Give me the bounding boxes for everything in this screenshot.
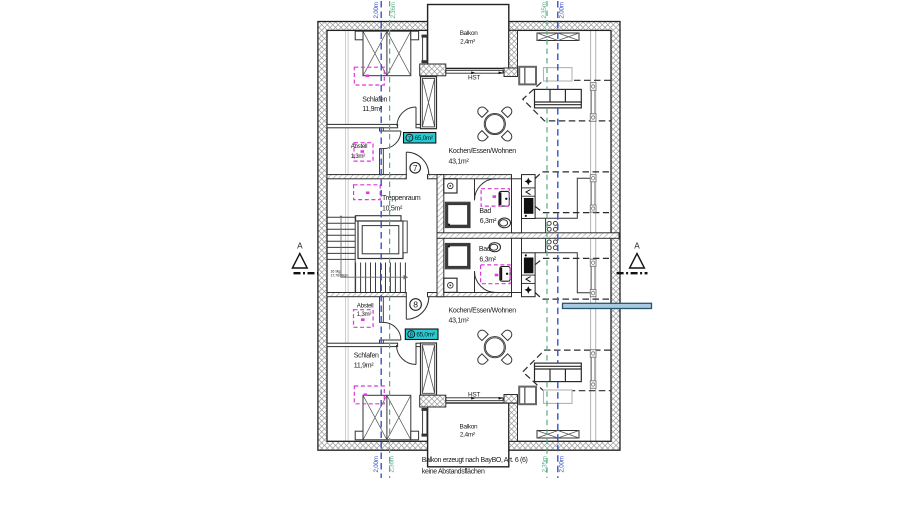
svg-text:Bad: Bad (479, 246, 491, 253)
svg-text:11,9m²: 11,9m² (354, 362, 374, 369)
svg-text:7: 7 (408, 136, 411, 142)
svg-text:2,36m: 2,36m (390, 2, 397, 18)
svg-text:keine Abstandsflächen: keine Abstandsflächen (422, 469, 485, 476)
svg-text:Balkon erzeugt nach BayBO, Art: Balkon erzeugt nach BayBO, Art. 6 (6) (422, 457, 528, 464)
svg-text:2,00m: 2,00m (558, 2, 565, 18)
svg-text:43,1m²: 43,1m² (449, 318, 470, 325)
svg-text:8: 8 (410, 333, 413, 339)
svg-text:6,3m²: 6,3m² (480, 218, 497, 225)
svg-text:Balkon: Balkon (460, 424, 478, 431)
svg-text:2,36m: 2,36m (389, 456, 396, 472)
svg-text:A: A (297, 242, 303, 251)
svg-text:2,35m: 2,35m (541, 456, 548, 472)
svg-text:Bad: Bad (479, 208, 491, 215)
svg-text:1,3m²: 1,3m² (357, 311, 372, 318)
svg-text:17,76/28cm: 17,76/28cm (330, 273, 348, 277)
svg-text:2,35m: 2,35m (541, 2, 548, 18)
svg-text:A: A (634, 242, 640, 251)
svg-text:Schlafen: Schlafen (362, 96, 387, 103)
svg-text:Kochen/Essen/Wohnen: Kochen/Essen/Wohnen (449, 308, 517, 315)
svg-text:2,00m: 2,00m (373, 456, 380, 472)
svg-text:Balkon: Balkon (460, 30, 478, 37)
svg-text:1,3m²: 1,3m² (351, 153, 366, 160)
svg-text:HST: HST (468, 75, 480, 82)
svg-text:43,1m²: 43,1m² (449, 158, 470, 165)
svg-text:2,4m²: 2,4m² (460, 38, 475, 45)
svg-text:10,5m²: 10,5m² (382, 206, 403, 213)
svg-text:11,9m²: 11,9m² (362, 106, 382, 113)
svg-text:6,3m²: 6,3m² (479, 257, 496, 264)
svg-text:2,00m: 2,00m (558, 456, 565, 472)
svg-text:Treppenraum: Treppenraum (382, 195, 421, 202)
svg-text:2,00m: 2,00m (373, 2, 380, 18)
svg-text:2,4m²: 2,4m² (460, 432, 475, 439)
svg-text:Schlafen: Schlafen (354, 353, 379, 360)
svg-text:Abstell: Abstell (357, 302, 373, 309)
svg-text:Abstell: Abstell (351, 143, 367, 150)
svg-text:Kochen/Essen/Wohnen: Kochen/Essen/Wohnen (449, 148, 517, 155)
svg-text:65,0m²: 65,0m² (416, 332, 434, 339)
svg-text:65,0m²: 65,0m² (415, 135, 433, 142)
svg-text:HST: HST (468, 391, 480, 398)
svg-text:8: 8 (413, 300, 418, 310)
svg-text:7: 7 (413, 164, 418, 173)
